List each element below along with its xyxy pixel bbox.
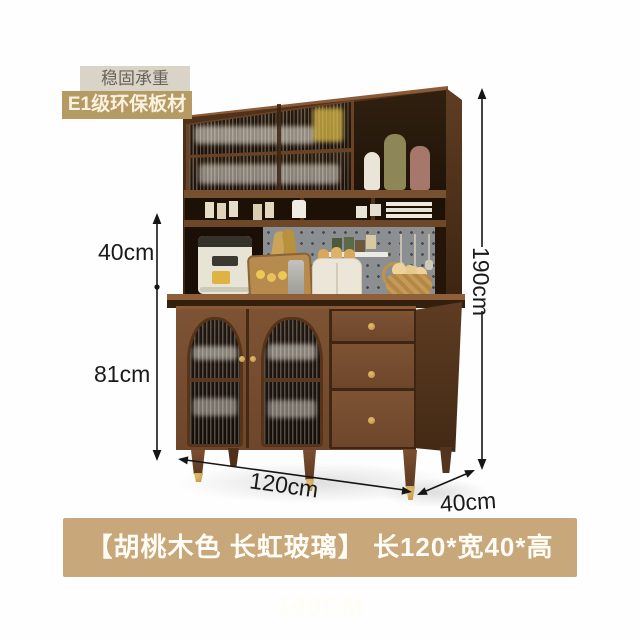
arrow-left-down-icon [417, 487, 428, 495]
arrow-right-icon [402, 487, 413, 495]
depth-label: 40cm [437, 487, 499, 518]
arrow-up-icon [153, 213, 162, 224]
lower-height-label: 81cm [94, 361, 150, 388]
total-height-label: 190cm [470, 247, 494, 311]
badge-e1-board: E1级环保板材 [62, 91, 192, 119]
badge-load-bearing: 稳固承重 [80, 66, 190, 91]
arrow-down-icon [478, 459, 487, 470]
arrow-up-icon [478, 88, 487, 99]
arrow-down-icon [153, 450, 162, 461]
depth-line [426, 474, 466, 491]
arrow-left-icon [178, 456, 188, 464]
segment-node [154, 284, 159, 289]
arrow-right-up-icon [464, 470, 475, 478]
product-listing-image: 40cm 81cm 190cm 120cm 40cm 稳固承重 E1级环保板材 … [0, 0, 640, 640]
upper-height-label: 40cm [98, 239, 154, 266]
product-spec-banner: 【胡桃木色 长虹玻璃】 长120*宽40*高190CM [63, 518, 577, 577]
